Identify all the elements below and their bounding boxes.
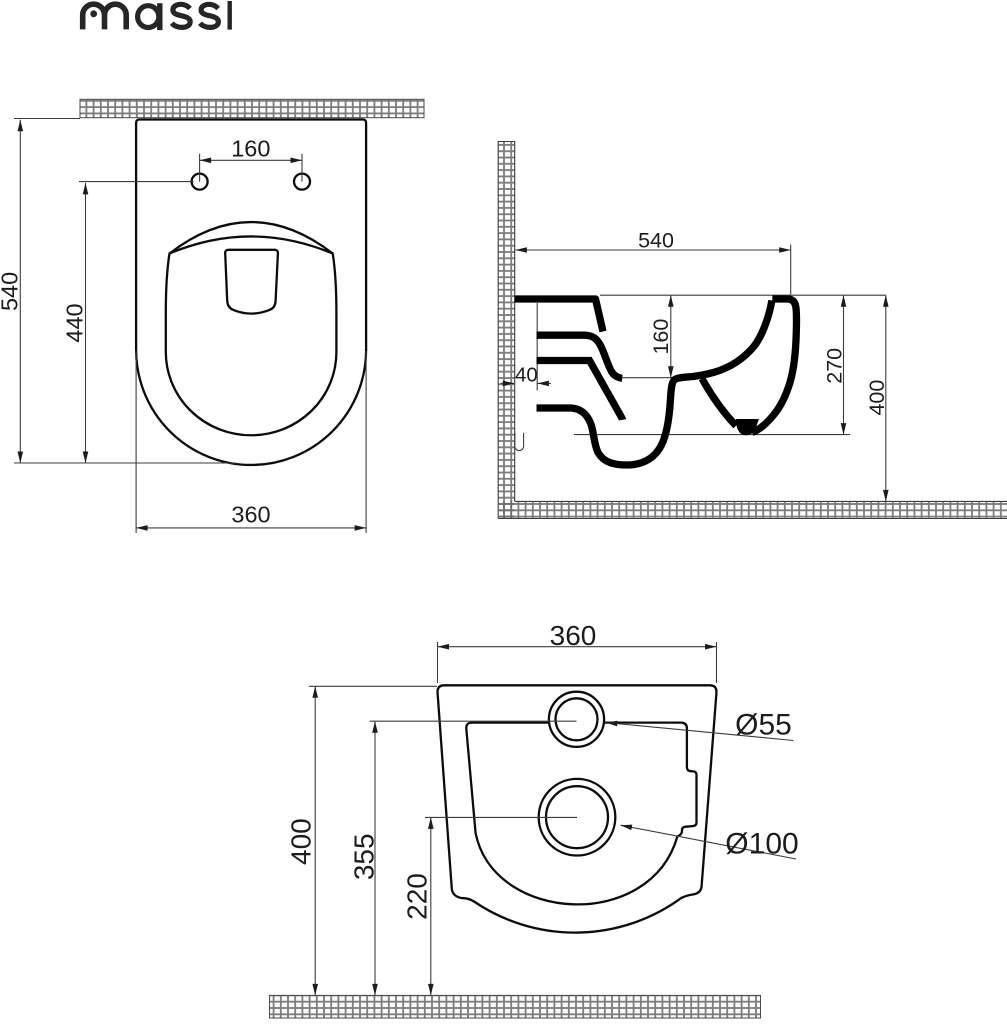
svg-text:360: 360 xyxy=(550,620,597,651)
svg-text:160: 160 xyxy=(649,319,673,355)
svg-text:355: 355 xyxy=(349,833,380,880)
svg-text:160: 160 xyxy=(231,136,270,162)
svg-text:400: 400 xyxy=(865,380,889,416)
svg-text:270: 270 xyxy=(823,348,847,384)
svg-text:440: 440 xyxy=(62,303,88,342)
svg-text:Ø100: Ø100 xyxy=(725,828,798,861)
svg-text:40: 40 xyxy=(515,364,538,387)
svg-text:540: 540 xyxy=(638,229,674,253)
svg-text:400: 400 xyxy=(286,818,317,865)
svg-text:540: 540 xyxy=(0,272,23,311)
svg-text:Ø55: Ø55 xyxy=(735,709,792,742)
svg-text:360: 360 xyxy=(231,502,270,528)
svg-text:220: 220 xyxy=(402,873,433,920)
